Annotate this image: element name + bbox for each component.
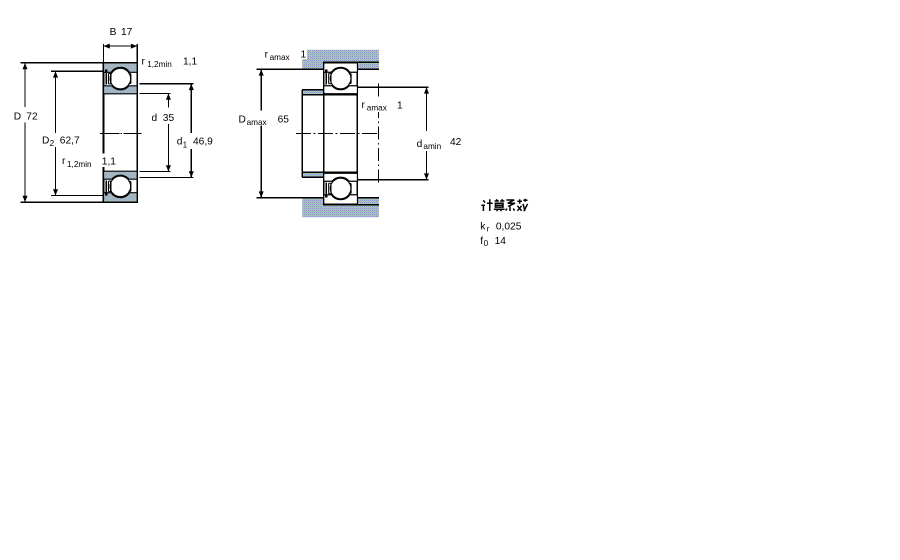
svg-text:B: B: [110, 27, 117, 38]
svg-text:1,2min: 1,2min: [67, 160, 92, 169]
svg-text:1: 1: [183, 140, 188, 149]
svg-text:amin: amin: [423, 142, 441, 151]
svg-text:r: r: [362, 100, 366, 111]
svg-text:amax: amax: [367, 104, 387, 113]
svg-text:1: 1: [397, 100, 403, 111]
svg-text:r: r: [142, 57, 146, 68]
svg-text:62,7: 62,7: [60, 136, 80, 147]
svg-text:r: r: [487, 225, 490, 234]
svg-text:D: D: [14, 111, 21, 122]
svg-text:0,025: 0,025: [496, 221, 522, 232]
svg-text:D: D: [239, 114, 246, 125]
svg-text:d: d: [417, 139, 423, 150]
svg-text:65: 65: [278, 114, 290, 125]
svg-text:42: 42: [450, 137, 462, 148]
svg-text:14: 14: [495, 236, 507, 247]
svg-text:r: r: [62, 156, 66, 167]
svg-text:amax: amax: [270, 53, 290, 62]
svg-text:1,2min: 1,2min: [147, 60, 172, 69]
svg-text:72: 72: [26, 111, 38, 122]
svg-text:D: D: [42, 136, 49, 147]
svg-text:1,1: 1,1: [183, 57, 197, 68]
svg-text:d: d: [152, 113, 158, 124]
svg-text:0: 0: [484, 239, 489, 248]
svg-text:1,1: 1,1: [102, 157, 116, 168]
svg-text:amax: amax: [247, 118, 267, 127]
svg-text:35: 35: [163, 113, 175, 124]
svg-text:2: 2: [50, 139, 55, 148]
svg-text:1: 1: [301, 50, 307, 61]
svg-text:17: 17: [121, 27, 133, 38]
svg-text:46,9: 46,9: [193, 137, 213, 148]
svg-text:r: r: [265, 50, 269, 61]
